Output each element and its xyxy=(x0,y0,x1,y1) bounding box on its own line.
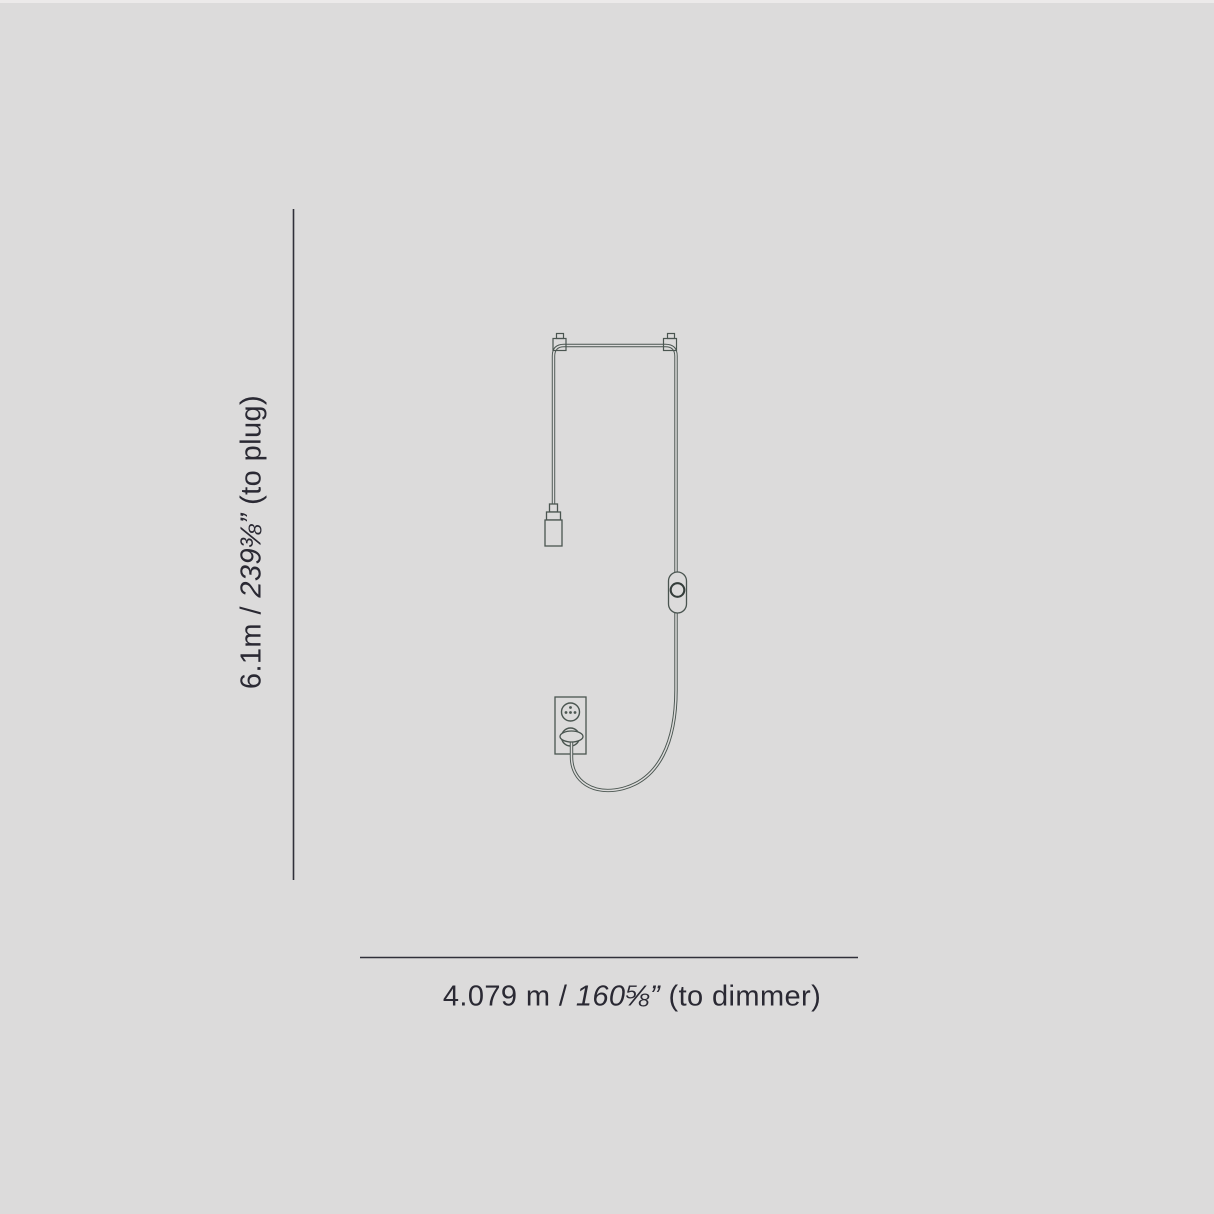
horizontal-label-suffix: (to dimmer) xyxy=(669,981,822,1013)
horizontal-imperial-value: 160⅝” xyxy=(576,981,660,1013)
dimension-diagram: 6.1m / 239⅜” (to plug) 4.079 m / 160⅝” (… xyxy=(0,0,1214,1214)
plug xyxy=(560,731,583,742)
lamp-line-drawing xyxy=(0,0,1214,1214)
vertical-label-suffix: (to plug) xyxy=(236,395,268,505)
dimmer-switch xyxy=(669,572,687,613)
horizontal-metric-value: 4.079 m / xyxy=(443,981,568,1013)
vertical-dimension-label: 6.1m / 239⅜” (to plug) xyxy=(236,395,269,689)
lamp-socket xyxy=(545,504,562,546)
vertical-metric-value: 6.1m / xyxy=(236,606,268,689)
vertical-imperial-value: 239⅜” xyxy=(236,513,268,597)
horizontal-dimension-label: 4.079 m / 160⅝” (to dimmer) xyxy=(443,981,821,1014)
